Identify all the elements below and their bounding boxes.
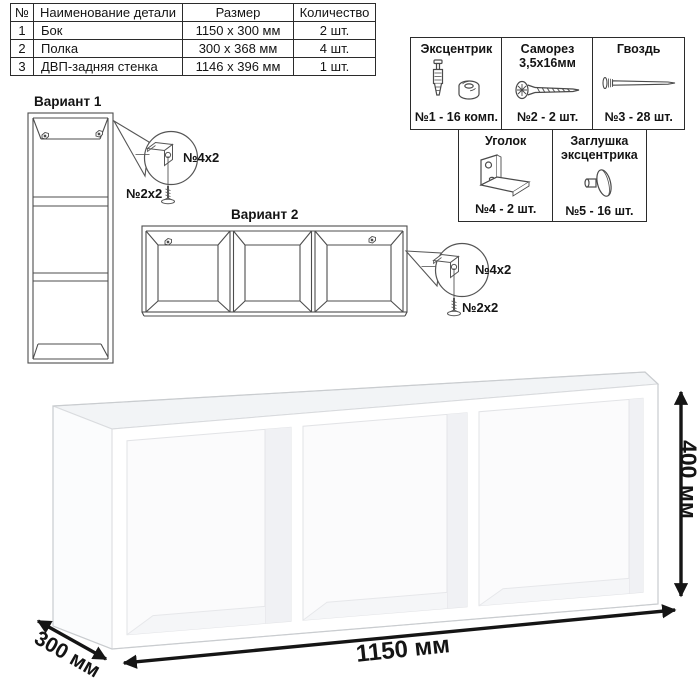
hardware-title: Эксцентрик (420, 38, 492, 56)
cam-bolt-and-cam-icon (425, 56, 487, 110)
hardware-box-row1: Эксцентрик №1 - 16 комп. Саморез 3,5 (410, 37, 685, 130)
variant1-bracket-qty-label: №4х2 (183, 150, 219, 165)
hardware-title: Саморез 3,5х16мм (502, 38, 593, 71)
nail-icon (600, 56, 678, 110)
hardware-title: Заглушка эксцентрика (553, 130, 646, 163)
variant1-screw-qty-label: №2х2 (126, 186, 162, 201)
height-dimension-label: 400 мм (675, 432, 700, 528)
hardware-box-row2: Уголок №4 - 2 шт. Заглушка эксцентрика (458, 129, 647, 222)
hardware-item-nail: Гвоздь №3 - 28 шт. (592, 37, 685, 130)
screw-icon (511, 71, 585, 110)
hardware-title: Уголок (485, 130, 526, 148)
variant2-screw-qty-label: №2х2 (462, 300, 498, 315)
variant2-drawing (142, 226, 407, 316)
shelf-3d-render (53, 372, 658, 649)
shelf-opening (303, 413, 467, 621)
screw-icon (448, 298, 461, 316)
cam-cap-icon (574, 162, 624, 204)
shelf-opening (479, 398, 643, 606)
variant2-bracket-qty-label: №4х2 (475, 262, 511, 277)
variant2-title: Вариант 2 (231, 207, 298, 222)
variant1-drawing (28, 113, 113, 363)
assembly-instruction-sheet: № Наименование детали Размер Количество … (0, 0, 700, 690)
hardware-count: №5 - 16 шт. (565, 204, 633, 223)
variant1-title: Вариант 1 (34, 94, 101, 109)
hardware-item-eccentric: Эксцентрик №1 - 16 комп. (410, 37, 503, 130)
corner-bracket-icon (473, 148, 539, 202)
hardware-item-screw: Саморез 3,5х16мм №2 - 2 шт. (501, 37, 594, 130)
hardware-count: №2 - 2 шт. (517, 110, 578, 129)
hardware-item-cam-cap: Заглушка эксцентрика №5 - 16 шт. (552, 129, 647, 222)
screw-icon (162, 186, 175, 204)
hardware-item-corner-bracket: Уголок №4 - 2 шт. (458, 129, 553, 222)
hardware-count: №3 - 28 шт. (605, 110, 673, 129)
hardware-title: Гвоздь (617, 38, 661, 56)
shelf-opening (127, 427, 291, 635)
hardware-count: №1 - 16 комп. (415, 110, 498, 129)
hardware-count: №4 - 2 шт. (475, 202, 536, 221)
